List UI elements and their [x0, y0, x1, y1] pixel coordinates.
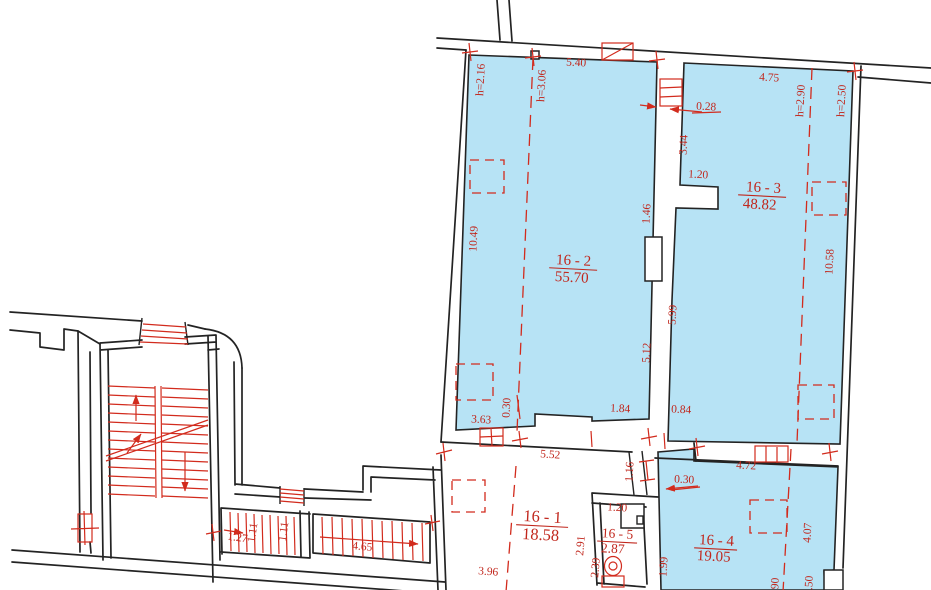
- floor-plan-canvas: 5.40 h=2.16 h=3.06 4.75 h=2.90 h=2.50 0.…: [0, 0, 931, 590]
- dim-top-16-4: 4.72: [736, 459, 757, 472]
- dim-407: 4.07: [801, 522, 814, 543]
- window-16-2-south: [480, 428, 503, 446]
- wall-notch-16-2: [645, 237, 662, 281]
- dim-199: 1.99: [657, 556, 670, 577]
- dim-146: 1.46: [640, 203, 653, 224]
- dim-030-b: 0.30: [674, 473, 695, 486]
- dim-height-left: h=2.16: [474, 63, 488, 96]
- dim-stair-465: 4.65: [352, 540, 373, 554]
- room-label-16-1: 16 - 1 18.58: [515, 506, 569, 546]
- room-16-2-number: 16 - 2: [556, 252, 592, 270]
- dim-top-width-16-3: 4.75: [759, 71, 780, 84]
- room-16-4-number: 16 - 4: [699, 532, 735, 550]
- window-west: [71, 511, 99, 545]
- window-partition: [660, 79, 682, 106]
- dim-line-116: [639, 460, 655, 481]
- dim-363: 3.63: [471, 413, 492, 426]
- dim-512: 5.12: [640, 342, 653, 363]
- room-16-2-fill: [456, 55, 657, 430]
- dim-120-16-5: 1.20: [607, 501, 628, 514]
- dim-stair-111-a: 1.11: [246, 522, 261, 543]
- dim-height-16-3-b: h=2.50: [835, 84, 849, 117]
- dim-084: 0.84: [671, 403, 692, 416]
- dim-120-stub: 1.20: [688, 168, 709, 181]
- room-label-16-5: 16 - 5 2.87: [596, 525, 638, 557]
- room-16-4-area: 19.05: [696, 548, 731, 566]
- dim-291: 2.91: [574, 535, 588, 556]
- window-top: [602, 43, 633, 60]
- room-16-1-area: 18.58: [522, 524, 560, 545]
- room-16-5-number: 16 - 5: [601, 525, 633, 542]
- dim-height-16-3-a: h=2.90: [794, 84, 808, 117]
- dim-side-16-2: 10.49: [467, 225, 480, 252]
- dim-184: 1.84: [610, 402, 631, 415]
- dim-height-16-4-b: h=2.50: [802, 575, 816, 590]
- dim-wall-thickness: 0.28: [696, 100, 717, 113]
- zone-line-16-1: [506, 466, 516, 590]
- entry-steps: [140, 324, 188, 344]
- dim-030-a: 0.30: [500, 397, 513, 418]
- dim-top-width-16-2: 5.40: [566, 56, 587, 69]
- wall-corner-notch: [824, 570, 843, 590]
- dim-height-16-4-a: h=2.90: [768, 577, 782, 590]
- toilet: [602, 557, 624, 588]
- room-16-2-area: 55.70: [554, 269, 589, 287]
- dim-239: 2.39: [589, 557, 603, 578]
- dim-stair-127: 1.27: [227, 531, 249, 546]
- dim-396: 3.96: [478, 565, 499, 578]
- room-16-3-area: 48.82: [742, 196, 777, 214]
- niche-6: [452, 480, 485, 512]
- dim-side-16-3: 10.58: [823, 248, 836, 275]
- floor-plan-page: 5.40 h=2.16 h=3.06 4.75 h=2.90 h=2.50 0.…: [0, 0, 931, 590]
- window-16-4-north: [755, 446, 788, 463]
- dim-344: 3.44: [677, 134, 690, 155]
- dim-599: 5.99: [666, 304, 679, 325]
- rooms-layer: [456, 51, 853, 590]
- dim-top-16-1: 5.52: [540, 448, 561, 461]
- dim-116: 1.16: [623, 461, 636, 482]
- dim-stair-111-b: 1.11: [277, 521, 292, 542]
- vent-steps: [280, 489, 304, 503]
- room-16-3-number: 16 - 3: [746, 179, 782, 197]
- room-16-5-area: 2.87: [601, 540, 626, 556]
- dim-height-mid: h=3.06: [535, 69, 549, 102]
